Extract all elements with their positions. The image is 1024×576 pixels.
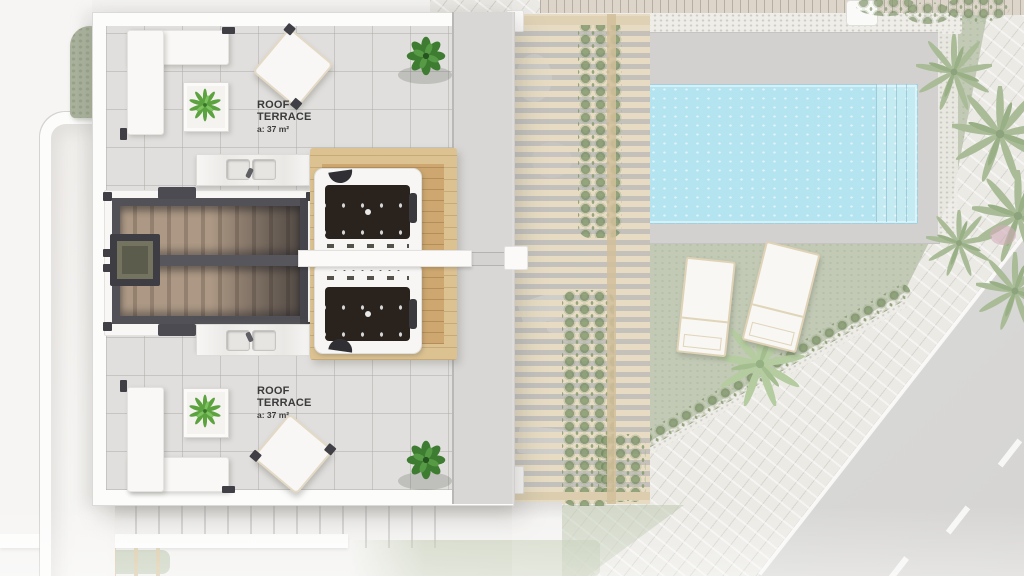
- stair-landing-tab: [158, 187, 196, 199]
- pergola-beam-bottom: [512, 492, 650, 500]
- label-line: ROOF: [257, 99, 312, 111]
- sink: [252, 159, 276, 180]
- sofa-end-post: [120, 380, 127, 392]
- elevator-cab-core: [122, 246, 148, 274]
- stair-wall-bottom: [112, 316, 308, 324]
- sofa-end-post: [222, 486, 235, 493]
- lounger-frame: [682, 334, 722, 351]
- railing-post: [103, 192, 112, 201]
- railing-post: [103, 322, 112, 331]
- sofa-end-post: [222, 27, 235, 34]
- headrest: [409, 299, 417, 329]
- jacuzzi-upper-tub: [325, 185, 410, 239]
- jet-center: [365, 209, 371, 215]
- sink: [252, 330, 276, 351]
- pergola: [512, 14, 650, 504]
- planter-plant: [186, 392, 224, 430]
- terrace-label-upper: ROOF TERRACE a: 37 m²: [257, 99, 312, 135]
- pool-steps: [876, 84, 916, 222]
- palm-tree: [952, 86, 1024, 182]
- sun-lounger: [676, 257, 736, 358]
- lounger-seam: [752, 303, 803, 318]
- potted-plant-lower: [400, 432, 452, 488]
- lounger-frame: [749, 322, 795, 346]
- pergola-wall-block: [504, 246, 528, 270]
- sofa-lower-vertical: [127, 387, 164, 492]
- pergola-beam-mid: [607, 14, 616, 504]
- potted-plant-upper: [400, 28, 452, 84]
- jet-center: [365, 311, 371, 317]
- jacuzzi-lower: [314, 262, 422, 354]
- stair-wall-top: [112, 198, 308, 206]
- label-area: a: 37 m²: [257, 123, 312, 135]
- jacuzzi-lower-tub: [325, 287, 410, 341]
- fence-post: [134, 548, 138, 576]
- control-strip: [327, 244, 409, 248]
- bush: [905, 2, 951, 24]
- label-area: a: 37 m²: [257, 409, 312, 421]
- stair-landing-tab: [158, 324, 196, 336]
- control-strip: [327, 276, 409, 280]
- sofa-upper-vertical: [127, 30, 164, 135]
- faded-grass-strip: [350, 540, 600, 576]
- terrace-label-lower: ROOF TERRACE a: 37 m²: [257, 385, 312, 421]
- flower-bush: [990, 225, 1016, 245]
- label-line: ROOF: [257, 385, 312, 397]
- headrest: [409, 193, 417, 223]
- sofa-end-post: [120, 128, 127, 140]
- divider-wall: [298, 250, 472, 267]
- label-line: TERRACE: [257, 111, 312, 123]
- label-line: TERRACE: [257, 397, 312, 409]
- jacuzzi-upper: [314, 168, 422, 260]
- roof-plan-rendering: ROOF TERRACE a: 37 m² ROOF TERRACE a: 37…: [0, 0, 1024, 576]
- spout: [328, 169, 353, 184]
- planter-plant: [186, 86, 224, 124]
- lounger-seam: [682, 316, 728, 323]
- pergola-beam-top: [512, 16, 650, 25]
- fence-post: [156, 548, 160, 576]
- button-row: [331, 269, 405, 272]
- palm-tree: [976, 252, 1024, 330]
